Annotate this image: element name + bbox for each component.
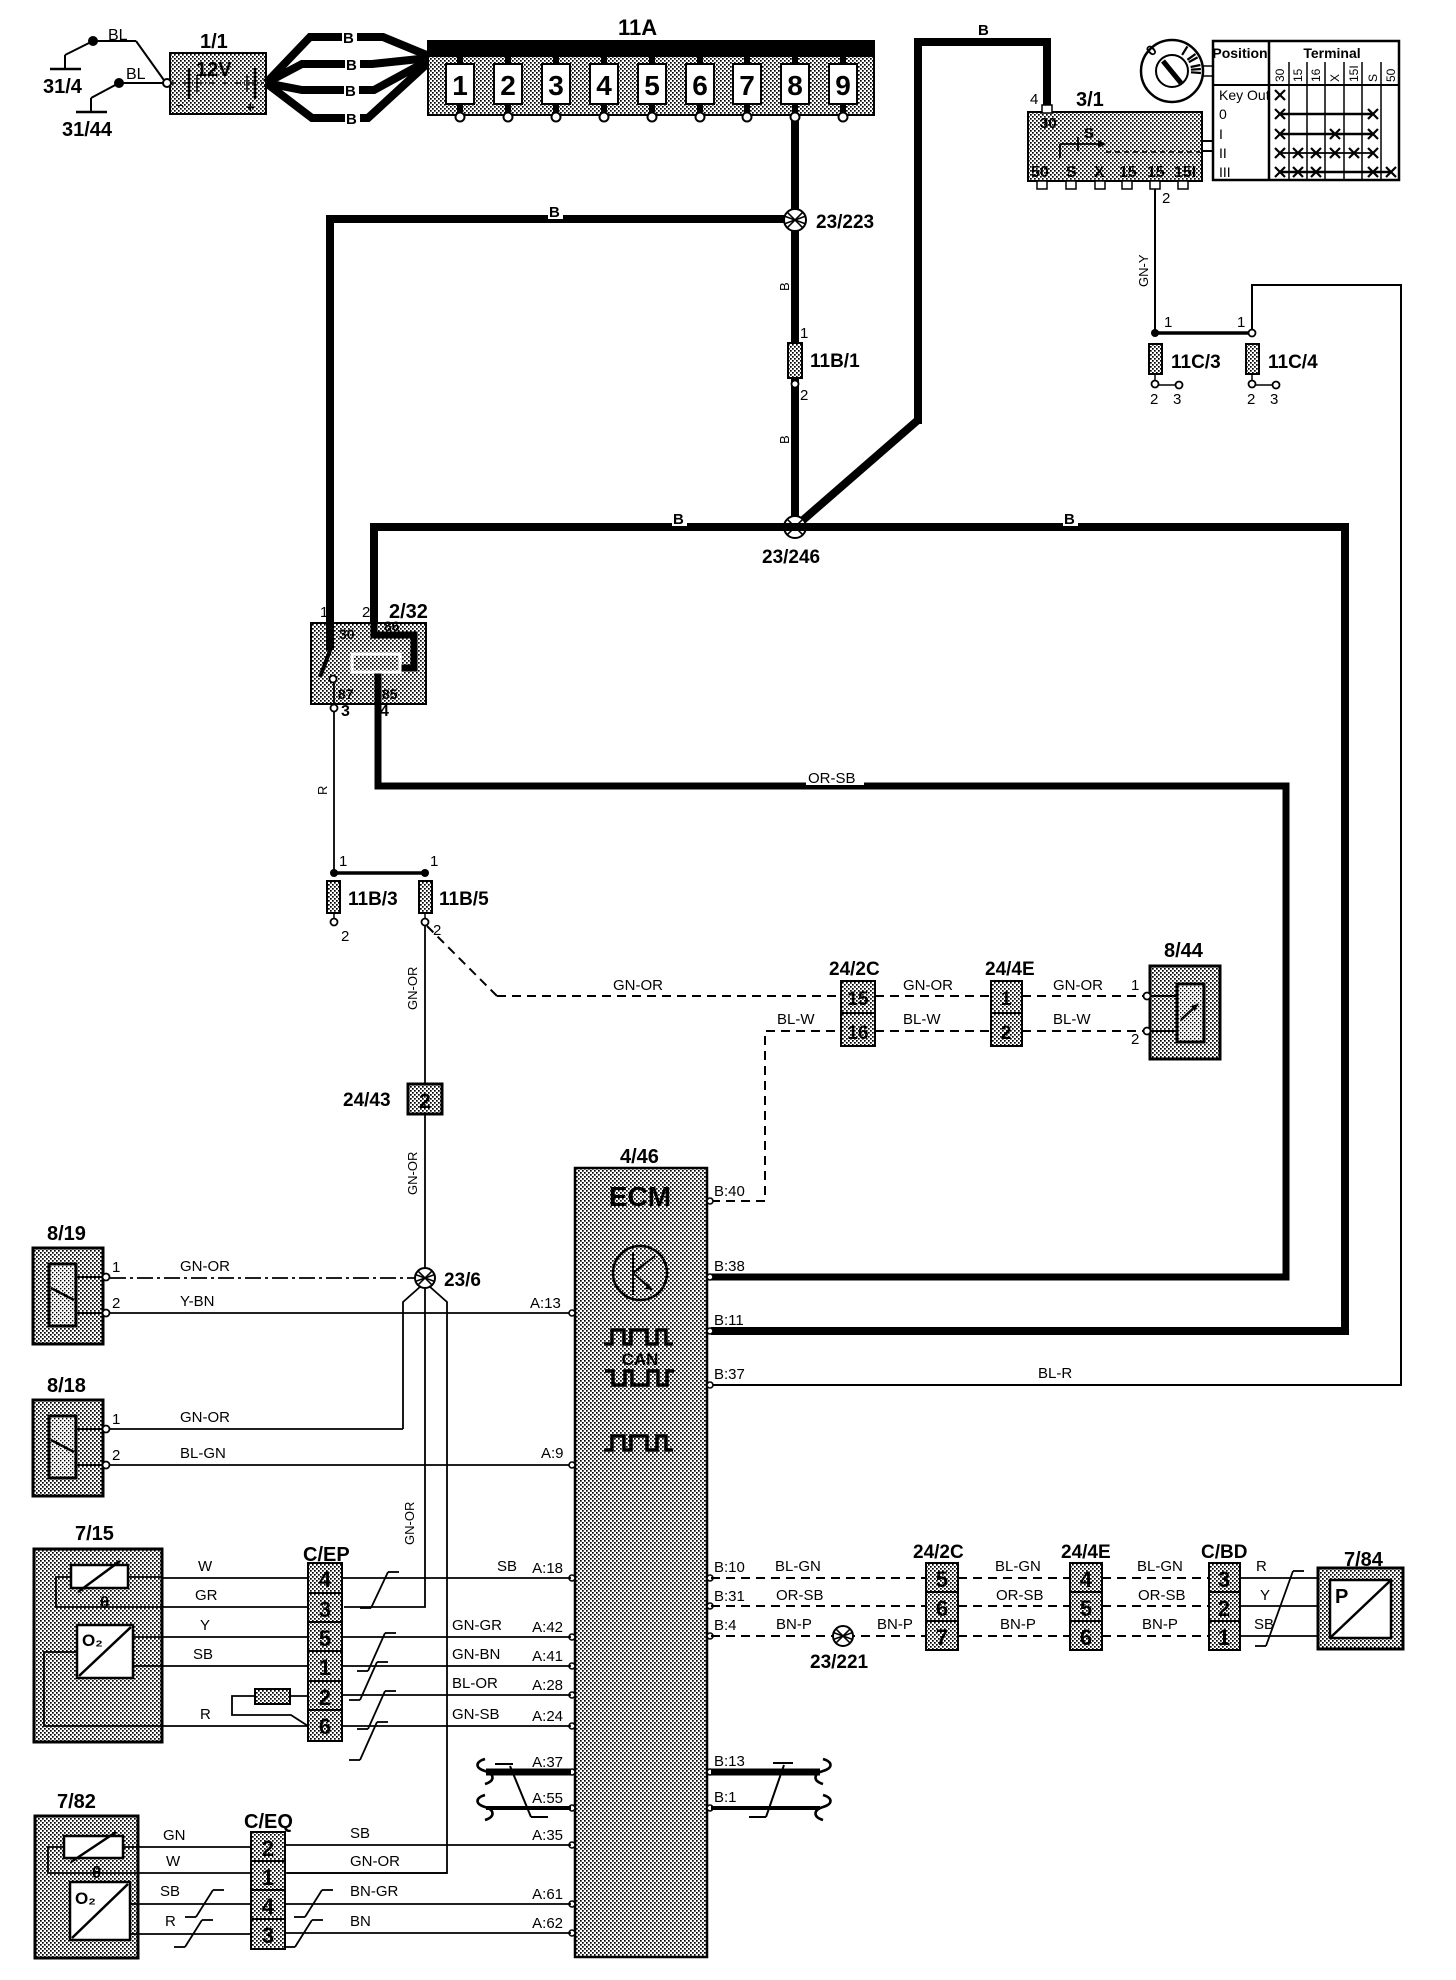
- svg-text:B:40: B:40: [714, 1183, 745, 1200]
- svg-text:R: R: [1256, 1558, 1267, 1575]
- svg-text:11B/5: 11B/5: [439, 889, 489, 910]
- svg-text:15: 15: [1147, 164, 1165, 181]
- svg-text:1: 1: [1237, 314, 1245, 331]
- svg-text:23/6: 23/6: [444, 1270, 481, 1291]
- svg-text:OR-SB: OR-SB: [776, 1587, 824, 1604]
- svg-text:6: 6: [1080, 1625, 1092, 1650]
- svg-text:GR: GR: [195, 1587, 218, 1604]
- svg-text:30: 30: [339, 626, 355, 642]
- svg-text:1: 1: [262, 1865, 274, 1890]
- svg-text:3: 3: [319, 1597, 331, 1622]
- svg-text:GN-SB: GN-SB: [452, 1706, 500, 1723]
- svg-text:2: 2: [433, 922, 441, 939]
- svg-text:A:41: A:41: [532, 1648, 563, 1665]
- svg-text:GN-OR: GN-OR: [350, 1853, 400, 1870]
- svg-text:GN-OR: GN-OR: [402, 1502, 417, 1545]
- svg-text:BL-R: BL-R: [1038, 1365, 1072, 1382]
- svg-text:2: 2: [262, 1836, 274, 1861]
- svg-text:III: III: [1219, 164, 1231, 180]
- svg-text:30: 30: [1273, 68, 1287, 82]
- svg-text:B:13: B:13: [714, 1753, 745, 1770]
- svg-text:GN-OR: GN-OR: [405, 967, 420, 1010]
- svg-text:3/1: 3/1: [1076, 89, 1104, 111]
- svg-text:5: 5: [319, 1626, 331, 1651]
- svg-text:B:1: B:1: [714, 1789, 737, 1806]
- svg-text:1: 1: [319, 1655, 331, 1680]
- svg-text:B:10: B:10: [714, 1559, 745, 1576]
- svg-text:BL-OR: BL-OR: [452, 1675, 498, 1692]
- svg-text:7/15: 7/15: [75, 1523, 114, 1545]
- svg-text:S: S: [1066, 164, 1077, 181]
- svg-text:16: 16: [847, 1023, 868, 1044]
- svg-text:2: 2: [112, 1447, 120, 1464]
- svg-text:1: 1: [1218, 1625, 1230, 1650]
- svg-text:3: 3: [1173, 391, 1181, 408]
- svg-text:BL-W: BL-W: [777, 1011, 815, 1028]
- svg-text:Terminal: Terminal: [1303, 45, 1360, 61]
- svg-text:GN-OR: GN-OR: [903, 977, 953, 994]
- svg-text:I: I: [1219, 126, 1223, 142]
- svg-text:R: R: [315, 786, 330, 795]
- svg-text:9: 9: [835, 70, 851, 101]
- svg-text:OR-SB: OR-SB: [808, 770, 856, 787]
- svg-text:B: B: [343, 30, 354, 47]
- svg-text:7: 7: [739, 70, 755, 101]
- svg-text:2: 2: [500, 70, 516, 101]
- svg-text:11B/1: 11B/1: [810, 351, 860, 372]
- svg-text:3: 3: [548, 70, 564, 101]
- svg-text:Y: Y: [1260, 1587, 1270, 1604]
- svg-text:GN-Y: GN-Y: [1136, 254, 1151, 287]
- svg-text:C/EQ: C/EQ: [244, 1811, 293, 1833]
- svg-text:BN-P: BN-P: [877, 1616, 913, 1633]
- svg-text:23/223: 23/223: [816, 212, 874, 233]
- svg-text:6: 6: [319, 1714, 331, 1739]
- svg-text:2: 2: [319, 1685, 331, 1710]
- svg-text:O₂: O₂: [82, 1631, 103, 1650]
- svg-text:11B/3: 11B/3: [348, 889, 398, 910]
- svg-text:4/46: 4/46: [620, 1146, 659, 1168]
- svg-text:A:28: A:28: [532, 1677, 563, 1694]
- svg-text:B:38: B:38: [714, 1258, 745, 1275]
- svg-text:BL-GN: BL-GN: [775, 1558, 821, 1575]
- svg-text:BL-W: BL-W: [903, 1011, 941, 1028]
- svg-text:A:35: A:35: [532, 1827, 563, 1844]
- svg-text:50: 50: [1384, 68, 1398, 82]
- svg-text:2: 2: [1001, 1023, 1012, 1044]
- svg-text:1: 1: [800, 325, 808, 342]
- svg-text:BN-GR: BN-GR: [350, 1883, 399, 1900]
- svg-text:BL-GN: BL-GN: [180, 1445, 226, 1462]
- svg-text:B: B: [777, 435, 792, 444]
- svg-text:23/221: 23/221: [810, 1652, 869, 1673]
- svg-text:16: 16: [1309, 68, 1323, 82]
- svg-text:OR-SB: OR-SB: [996, 1587, 1044, 1604]
- svg-text:W: W: [198, 1558, 213, 1575]
- svg-text:1: 1: [320, 604, 328, 621]
- svg-text:B:4: B:4: [714, 1617, 737, 1634]
- svg-text:BN-P: BN-P: [776, 1616, 812, 1633]
- svg-text:24/43: 24/43: [343, 1090, 391, 1111]
- svg-text:ECM: ECM: [609, 1181, 671, 1212]
- svg-text:B:31: B:31: [714, 1588, 745, 1605]
- svg-text:8/19: 8/19: [47, 1223, 86, 1245]
- svg-text:2: 2: [112, 1295, 120, 1312]
- svg-text:15I: 15I: [1174, 164, 1196, 181]
- svg-text:4: 4: [1080, 1567, 1093, 1592]
- svg-text:Y-BN: Y-BN: [180, 1293, 214, 1310]
- svg-text:6: 6: [936, 1596, 948, 1621]
- svg-text:4: 4: [596, 70, 612, 101]
- svg-text:B: B: [978, 22, 989, 39]
- svg-text:GN-OR: GN-OR: [180, 1258, 230, 1275]
- svg-text:Y: Y: [200, 1617, 210, 1634]
- svg-text:CAN: CAN: [622, 1350, 659, 1369]
- svg-text:2: 2: [362, 604, 370, 621]
- svg-text:θ: θ: [100, 1593, 109, 1612]
- svg-text:2: 2: [1131, 1031, 1139, 1048]
- svg-text:1: 1: [452, 70, 468, 101]
- svg-text:15I: 15I: [1347, 65, 1361, 82]
- svg-text:B: B: [1064, 511, 1075, 528]
- svg-text:A:55: A:55: [532, 1790, 563, 1807]
- svg-text:8/18: 8/18: [47, 1375, 86, 1397]
- svg-text:15: 15: [1119, 164, 1137, 181]
- svg-text:2: 2: [1162, 190, 1170, 207]
- svg-text:A:9: A:9: [541, 1445, 564, 1462]
- svg-text:A:62: A:62: [532, 1915, 563, 1932]
- svg-text:A:13: A:13: [530, 1295, 561, 1312]
- svg-text:−: −: [176, 98, 184, 113]
- svg-text:II: II: [1219, 145, 1227, 161]
- svg-text:+: +: [246, 99, 255, 116]
- svg-text:3: 3: [1218, 1567, 1230, 1592]
- svg-text:2: 2: [1247, 391, 1255, 408]
- svg-text:1: 1: [1164, 314, 1172, 331]
- svg-text:8: 8: [787, 70, 803, 101]
- svg-text:2: 2: [1218, 1596, 1230, 1621]
- svg-text:B: B: [345, 83, 356, 100]
- svg-text:A:24: A:24: [532, 1708, 563, 1725]
- svg-text:GN-GR: GN-GR: [452, 1617, 502, 1634]
- svg-text:4: 4: [1030, 91, 1038, 108]
- svg-text:A:18: A:18: [532, 1560, 563, 1577]
- svg-text:15: 15: [847, 989, 869, 1010]
- svg-text:P: P: [1335, 1586, 1348, 1608]
- svg-text:GN: GN: [163, 1827, 186, 1844]
- svg-text:11A: 11A: [618, 15, 657, 40]
- svg-text:24/2C: 24/2C: [829, 959, 880, 980]
- svg-text:SB: SB: [497, 1558, 517, 1575]
- svg-text:31/4: 31/4: [43, 76, 83, 98]
- svg-text:1: 1: [112, 1411, 120, 1428]
- svg-text:O₂: O₂: [75, 1889, 96, 1908]
- svg-text:50: 50: [1031, 164, 1049, 181]
- svg-text:1/1: 1/1: [200, 31, 228, 53]
- svg-text:BL-GN: BL-GN: [995, 1558, 1041, 1575]
- svg-text:R: R: [200, 1706, 211, 1723]
- svg-text:3: 3: [1270, 391, 1278, 408]
- svg-text:6: 6: [692, 70, 708, 101]
- svg-text:Key Out: Key Out: [1219, 87, 1270, 103]
- svg-text:BN-P: BN-P: [1000, 1616, 1036, 1633]
- svg-text:BN: BN: [350, 1913, 371, 1930]
- svg-text:11C/4: 11C/4: [1268, 352, 1318, 373]
- svg-text:A:61: A:61: [532, 1886, 563, 1903]
- svg-text:W: W: [166, 1853, 181, 1870]
- svg-text:8/44: 8/44: [1164, 940, 1204, 962]
- svg-text:3: 3: [262, 1923, 274, 1948]
- svg-text:A:37: A:37: [532, 1754, 563, 1771]
- svg-text:2: 2: [341, 928, 349, 945]
- svg-text:SB: SB: [350, 1825, 370, 1842]
- svg-text:S: S: [1084, 125, 1094, 142]
- svg-text:11C/3: 11C/3: [1171, 352, 1221, 373]
- svg-text:X: X: [1094, 164, 1105, 181]
- svg-text:GN-OR: GN-OR: [613, 977, 663, 994]
- svg-text:GN-OR: GN-OR: [405, 1152, 420, 1195]
- svg-text:GN-OR: GN-OR: [1053, 977, 1103, 994]
- svg-text:1: 1: [1001, 989, 1012, 1010]
- svg-text:24/2C: 24/2C: [913, 1542, 964, 1563]
- svg-text:0: 0: [1219, 106, 1227, 122]
- svg-text:B: B: [673, 511, 684, 528]
- svg-text:2: 2: [1150, 391, 1158, 408]
- svg-text:4: 4: [319, 1567, 332, 1592]
- svg-text:1: 1: [430, 853, 438, 870]
- svg-text:3: 3: [341, 703, 350, 720]
- svg-text:BL-W: BL-W: [1053, 1011, 1091, 1028]
- svg-text:R: R: [165, 1913, 176, 1930]
- svg-text:B:37: B:37: [714, 1366, 745, 1383]
- svg-text:C/BD: C/BD: [1201, 1542, 1247, 1563]
- svg-text:24/4E: 24/4E: [1061, 1542, 1111, 1563]
- svg-text:GN-BN: GN-BN: [452, 1646, 500, 1663]
- svg-text:87: 87: [338, 686, 354, 702]
- svg-text:30: 30: [1040, 115, 1057, 132]
- svg-text:X: X: [1328, 74, 1342, 82]
- svg-text:S: S: [1366, 74, 1380, 82]
- svg-text:BL: BL: [108, 27, 128, 44]
- svg-text:BL: BL: [126, 66, 146, 83]
- svg-text:4: 4: [262, 1894, 275, 1919]
- svg-text:2: 2: [419, 1090, 431, 1113]
- svg-text:B: B: [346, 57, 357, 74]
- svg-text:GN-OR: GN-OR: [180, 1409, 230, 1426]
- svg-text:23/246: 23/246: [762, 547, 820, 568]
- svg-text:OR-SB: OR-SB: [1138, 1587, 1186, 1604]
- svg-text:12V: 12V: [196, 59, 232, 81]
- svg-text:B: B: [346, 111, 357, 128]
- svg-text:B:11: B:11: [714, 1312, 744, 1329]
- svg-text:BL-GN: BL-GN: [1137, 1558, 1183, 1575]
- svg-text:15: 15: [1291, 68, 1305, 82]
- svg-text:B: B: [549, 204, 560, 221]
- svg-text:A:42: A:42: [532, 1619, 563, 1636]
- svg-text:24/4E: 24/4E: [985, 959, 1035, 980]
- svg-text:5: 5: [936, 1567, 948, 1592]
- svg-text:7/82: 7/82: [57, 1791, 96, 1813]
- svg-text:2: 2: [800, 387, 808, 404]
- svg-text:BN-P: BN-P: [1142, 1616, 1178, 1633]
- svg-text:1: 1: [339, 853, 347, 870]
- svg-text:31/44: 31/44: [62, 119, 113, 141]
- svg-text:Position: Position: [1212, 45, 1267, 61]
- svg-text:SB: SB: [160, 1883, 180, 1900]
- svg-text:SB: SB: [193, 1646, 213, 1663]
- svg-text:1: 1: [1131, 977, 1139, 994]
- svg-text:5: 5: [644, 70, 660, 101]
- svg-text:85: 85: [382, 686, 398, 702]
- svg-text:5: 5: [1080, 1596, 1092, 1621]
- svg-text:1: 1: [112, 1259, 120, 1276]
- svg-text:7: 7: [936, 1625, 948, 1650]
- svg-text:B: B: [777, 282, 792, 291]
